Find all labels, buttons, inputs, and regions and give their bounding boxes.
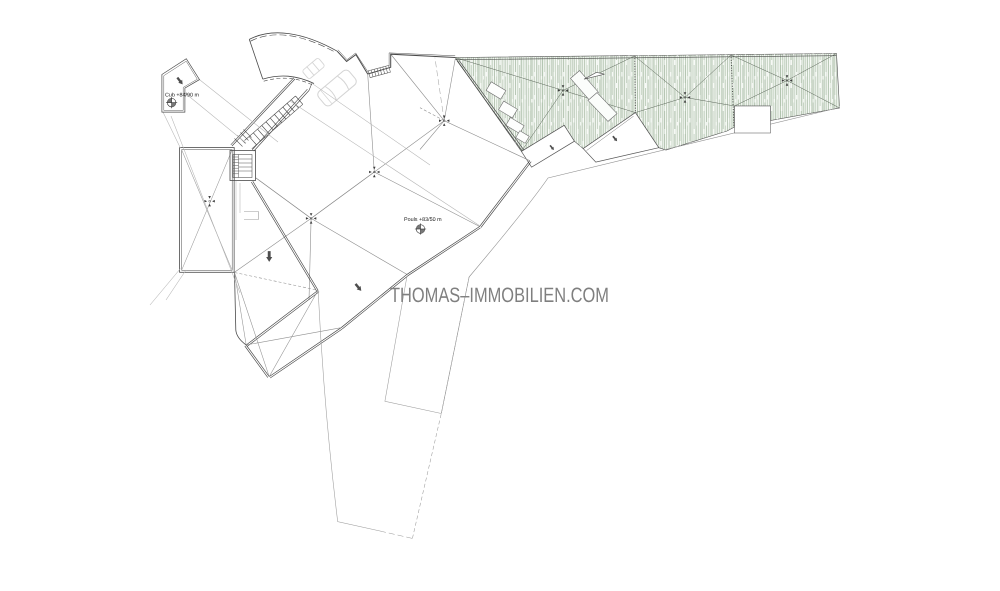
svg-text:Pouls +83/50 m: Pouls +83/50 m (404, 217, 442, 223)
svg-text:THOMAS–IMMOBILIEN.COM: THOMAS–IMMOBILIEN.COM (390, 284, 609, 307)
svg-text:Cub +84/90 m: Cub +84/90 m (165, 93, 200, 99)
